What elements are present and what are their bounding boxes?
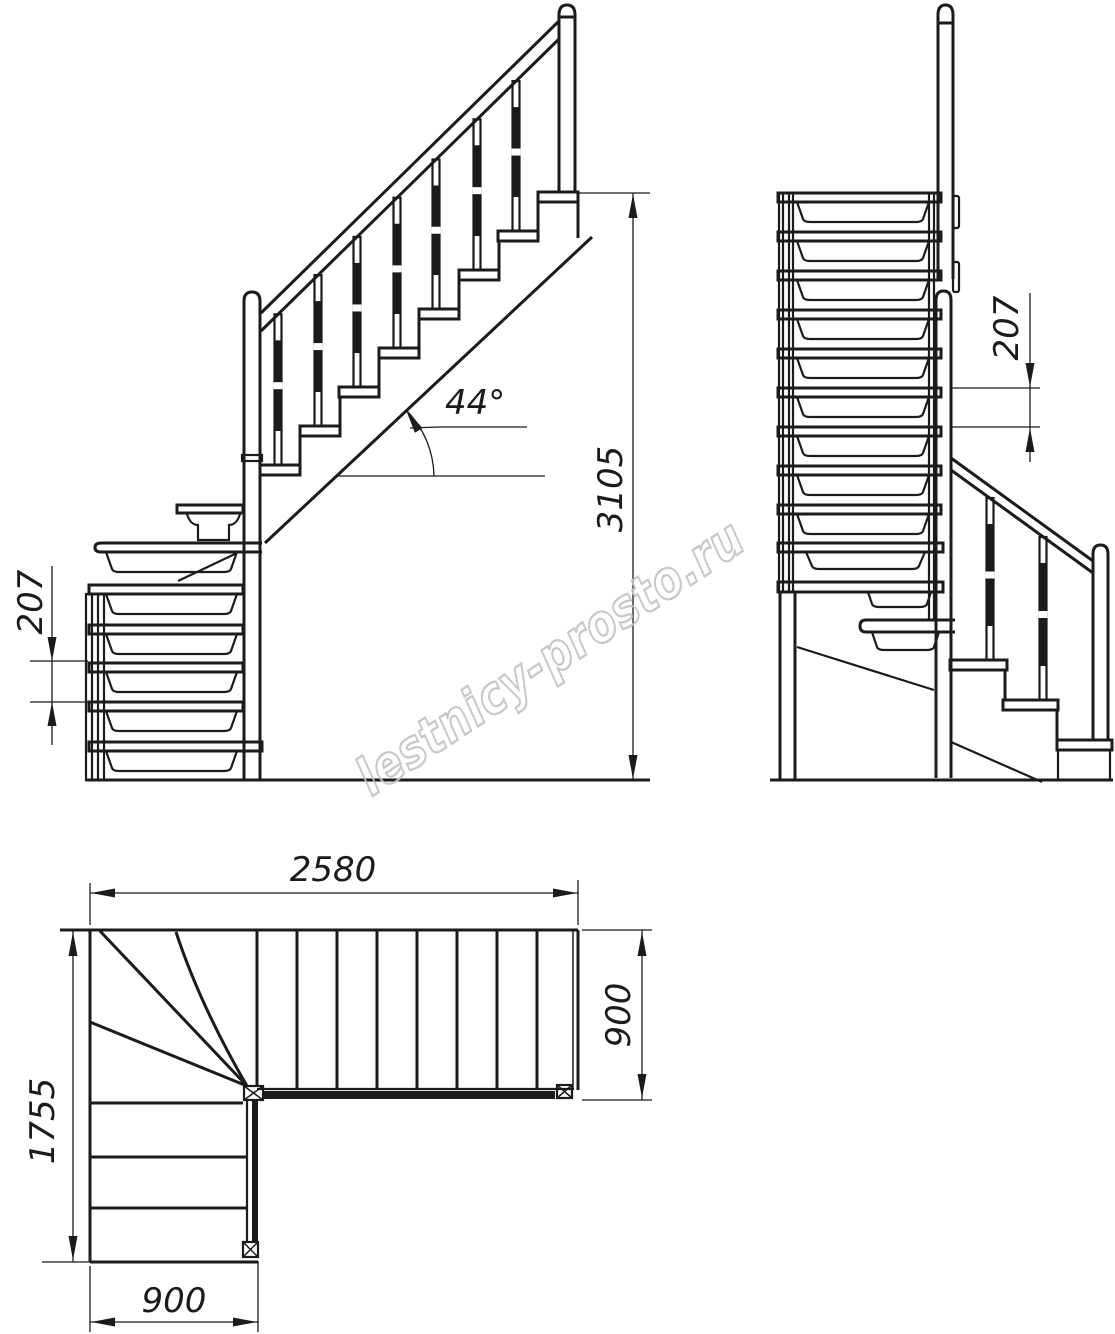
dimension-arrowhead	[629, 755, 638, 779]
side-step-1	[950, 660, 1007, 670]
side-riser-dimension-label: 207	[987, 295, 1027, 360]
plan-lowerwidth-dimension-label: 900	[142, 1281, 207, 1321]
side-platform-board	[860, 620, 955, 632]
side-stack-board	[778, 193, 941, 202]
side-tread-pan	[797, 280, 929, 300]
front-top-newel-post	[559, 5, 575, 192]
front-platform-board	[95, 543, 262, 552]
angle-dimension-label: 44°	[445, 383, 505, 423]
side-step-2	[1003, 700, 1058, 710]
front-tread-pan	[106, 711, 237, 731]
front-tread	[498, 231, 538, 241]
front-tread	[260, 465, 300, 475]
plan-winder-line-1	[100, 931, 247, 1086]
front-lower-board	[89, 742, 262, 751]
dimension-arrowhead	[91, 889, 115, 898]
front-lower-board	[89, 663, 243, 672]
front-tread	[538, 192, 578, 202]
dimension-arrowhead	[1026, 363, 1035, 387]
side-handrail-bottom	[951, 470, 1093, 573]
side-stringer-lower	[951, 742, 1042, 782]
side-tread-stack	[778, 193, 943, 607]
side-step-3	[1057, 740, 1112, 750]
front-tread-pan	[106, 751, 237, 771]
side-handrail-stub-upper	[953, 196, 959, 228]
side-stack-board	[778, 310, 941, 319]
front-lower-flight	[89, 552, 262, 771]
side-tread-pan	[797, 241, 929, 261]
front-tread	[459, 270, 499, 280]
angle-leader-line	[410, 427, 527, 428]
front-lower-board	[89, 625, 243, 634]
side-stack-board	[778, 466, 941, 475]
front-winder-edge	[178, 553, 237, 581]
plan-stringer-thick	[263, 1091, 555, 1099]
front-riser-dimension-label: 207	[11, 569, 51, 634]
dimension-arrowhead	[48, 702, 57, 726]
dimension-arrowhead	[638, 932, 647, 956]
front-tread-pan	[106, 634, 237, 654]
side-left-post	[780, 592, 795, 780]
side-stack-board	[778, 505, 941, 514]
dimension-arrowhead	[233, 1318, 257, 1327]
plan-width-dimension-label: 900	[599, 983, 639, 1048]
watermark-text: lestnicy-prosto.ru	[346, 508, 756, 808]
side-tread-pan	[806, 552, 925, 569]
side-handrail-top	[951, 458, 1093, 561]
front-tread-pan	[106, 594, 237, 614]
side-tread-pan	[797, 202, 929, 222]
plan-right-post	[557, 1085, 572, 1098]
front-tread	[419, 309, 459, 319]
plan-corner-post	[244, 1086, 263, 1100]
side-tread-pan	[797, 436, 929, 456]
plan-depth-dimension-label: 1755	[23, 1078, 63, 1165]
side-stack-board	[778, 349, 941, 358]
side-right-newel-post	[1093, 545, 1108, 740]
dimension-arrowhead	[638, 1074, 647, 1098]
front-lower-board	[89, 702, 243, 711]
plan-tread-lines	[257, 930, 537, 1089]
front-winder-step	[177, 505, 243, 513]
side-central-newel-post	[936, 291, 951, 778]
dimension-arrowhead	[48, 637, 57, 661]
side-tread-pan	[797, 514, 929, 534]
plan-view: 2580 900 1755 900	[23, 850, 652, 1332]
front-tread-pan	[106, 672, 237, 692]
plan-length-dimension-label: 2580	[290, 850, 377, 890]
front-central-newel-post	[244, 292, 260, 780]
side-stack-board	[778, 232, 941, 241]
side-tread-pan	[797, 319, 929, 339]
plan-bottom-post	[243, 1242, 258, 1257]
side-handrail-stub-lower	[953, 262, 959, 292]
dimension-arrowhead	[629, 194, 638, 218]
side-elevation-view: 207	[770, 5, 1113, 782]
staircase-technical-drawing: 44° 3105 207	[0, 0, 1115, 1334]
front-tread	[339, 387, 379, 397]
front-tread	[379, 348, 419, 358]
height-dimension-label: 3105	[591, 446, 631, 533]
side-platform-pan	[872, 632, 939, 650]
side-left-rail-a	[779, 193, 783, 592]
side-stringer-upper	[797, 647, 934, 690]
front-step-bracket	[184, 513, 243, 540]
side-left-rail-b	[789, 193, 793, 592]
dimension-arrowhead	[1026, 428, 1035, 452]
side-stack-board	[778, 388, 941, 397]
side-tread-pan	[868, 592, 931, 607]
side-tread-pan	[797, 358, 929, 378]
side-stack-board	[778, 427, 941, 436]
dimension-arrowhead	[91, 1318, 115, 1327]
side-stack-board	[778, 271, 941, 280]
plan-winder-line-3	[90, 1022, 247, 1086]
side-right-rail	[929, 193, 934, 620]
dimension-arrowhead	[69, 1236, 78, 1260]
dimension-arrowhead	[553, 889, 577, 898]
front-lower-board	[89, 585, 243, 594]
front-tread	[300, 426, 340, 436]
side-stack-board	[778, 543, 943, 552]
dimension-arrowhead	[69, 932, 78, 956]
plan-lower-stringer-thick	[252, 1100, 258, 1242]
side-tread-pan	[797, 397, 929, 417]
front-treads	[260, 192, 578, 475]
side-tread-pan	[797, 475, 929, 495]
side-stack-board	[778, 582, 943, 592]
